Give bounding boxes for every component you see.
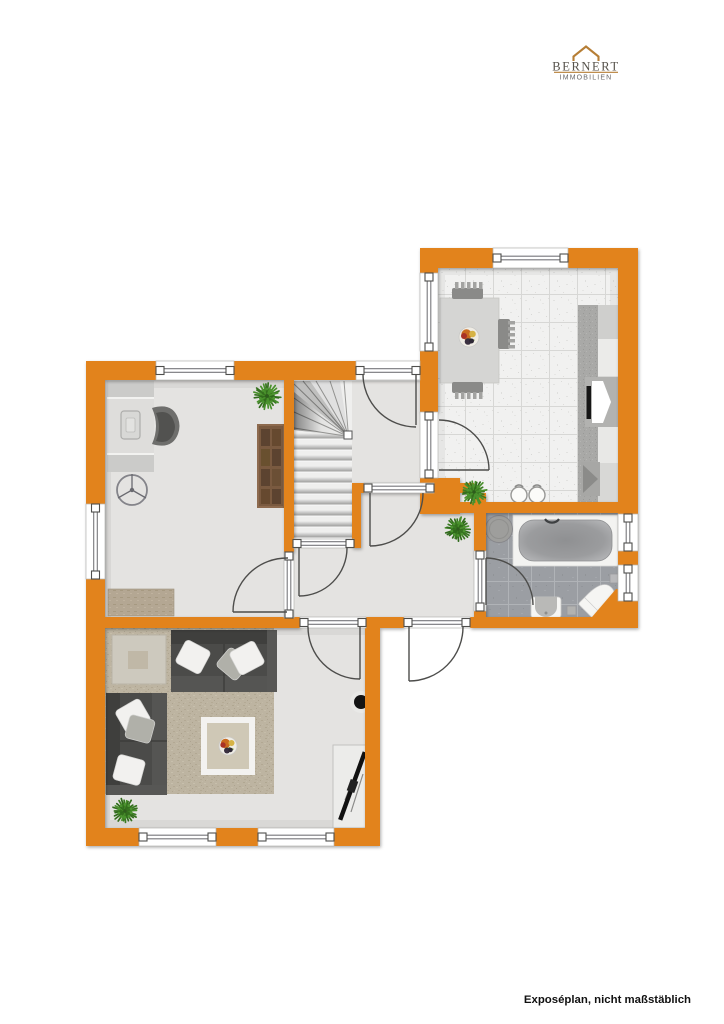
- svg-text:BERNERT: BERNERT: [552, 60, 619, 74]
- svg-text:IMMOBILIEN: IMMOBILIEN: [560, 75, 613, 82]
- svg-text:Exposéplan, nicht maßstäblich: Exposéplan, nicht maßstäblich: [524, 994, 691, 1006]
